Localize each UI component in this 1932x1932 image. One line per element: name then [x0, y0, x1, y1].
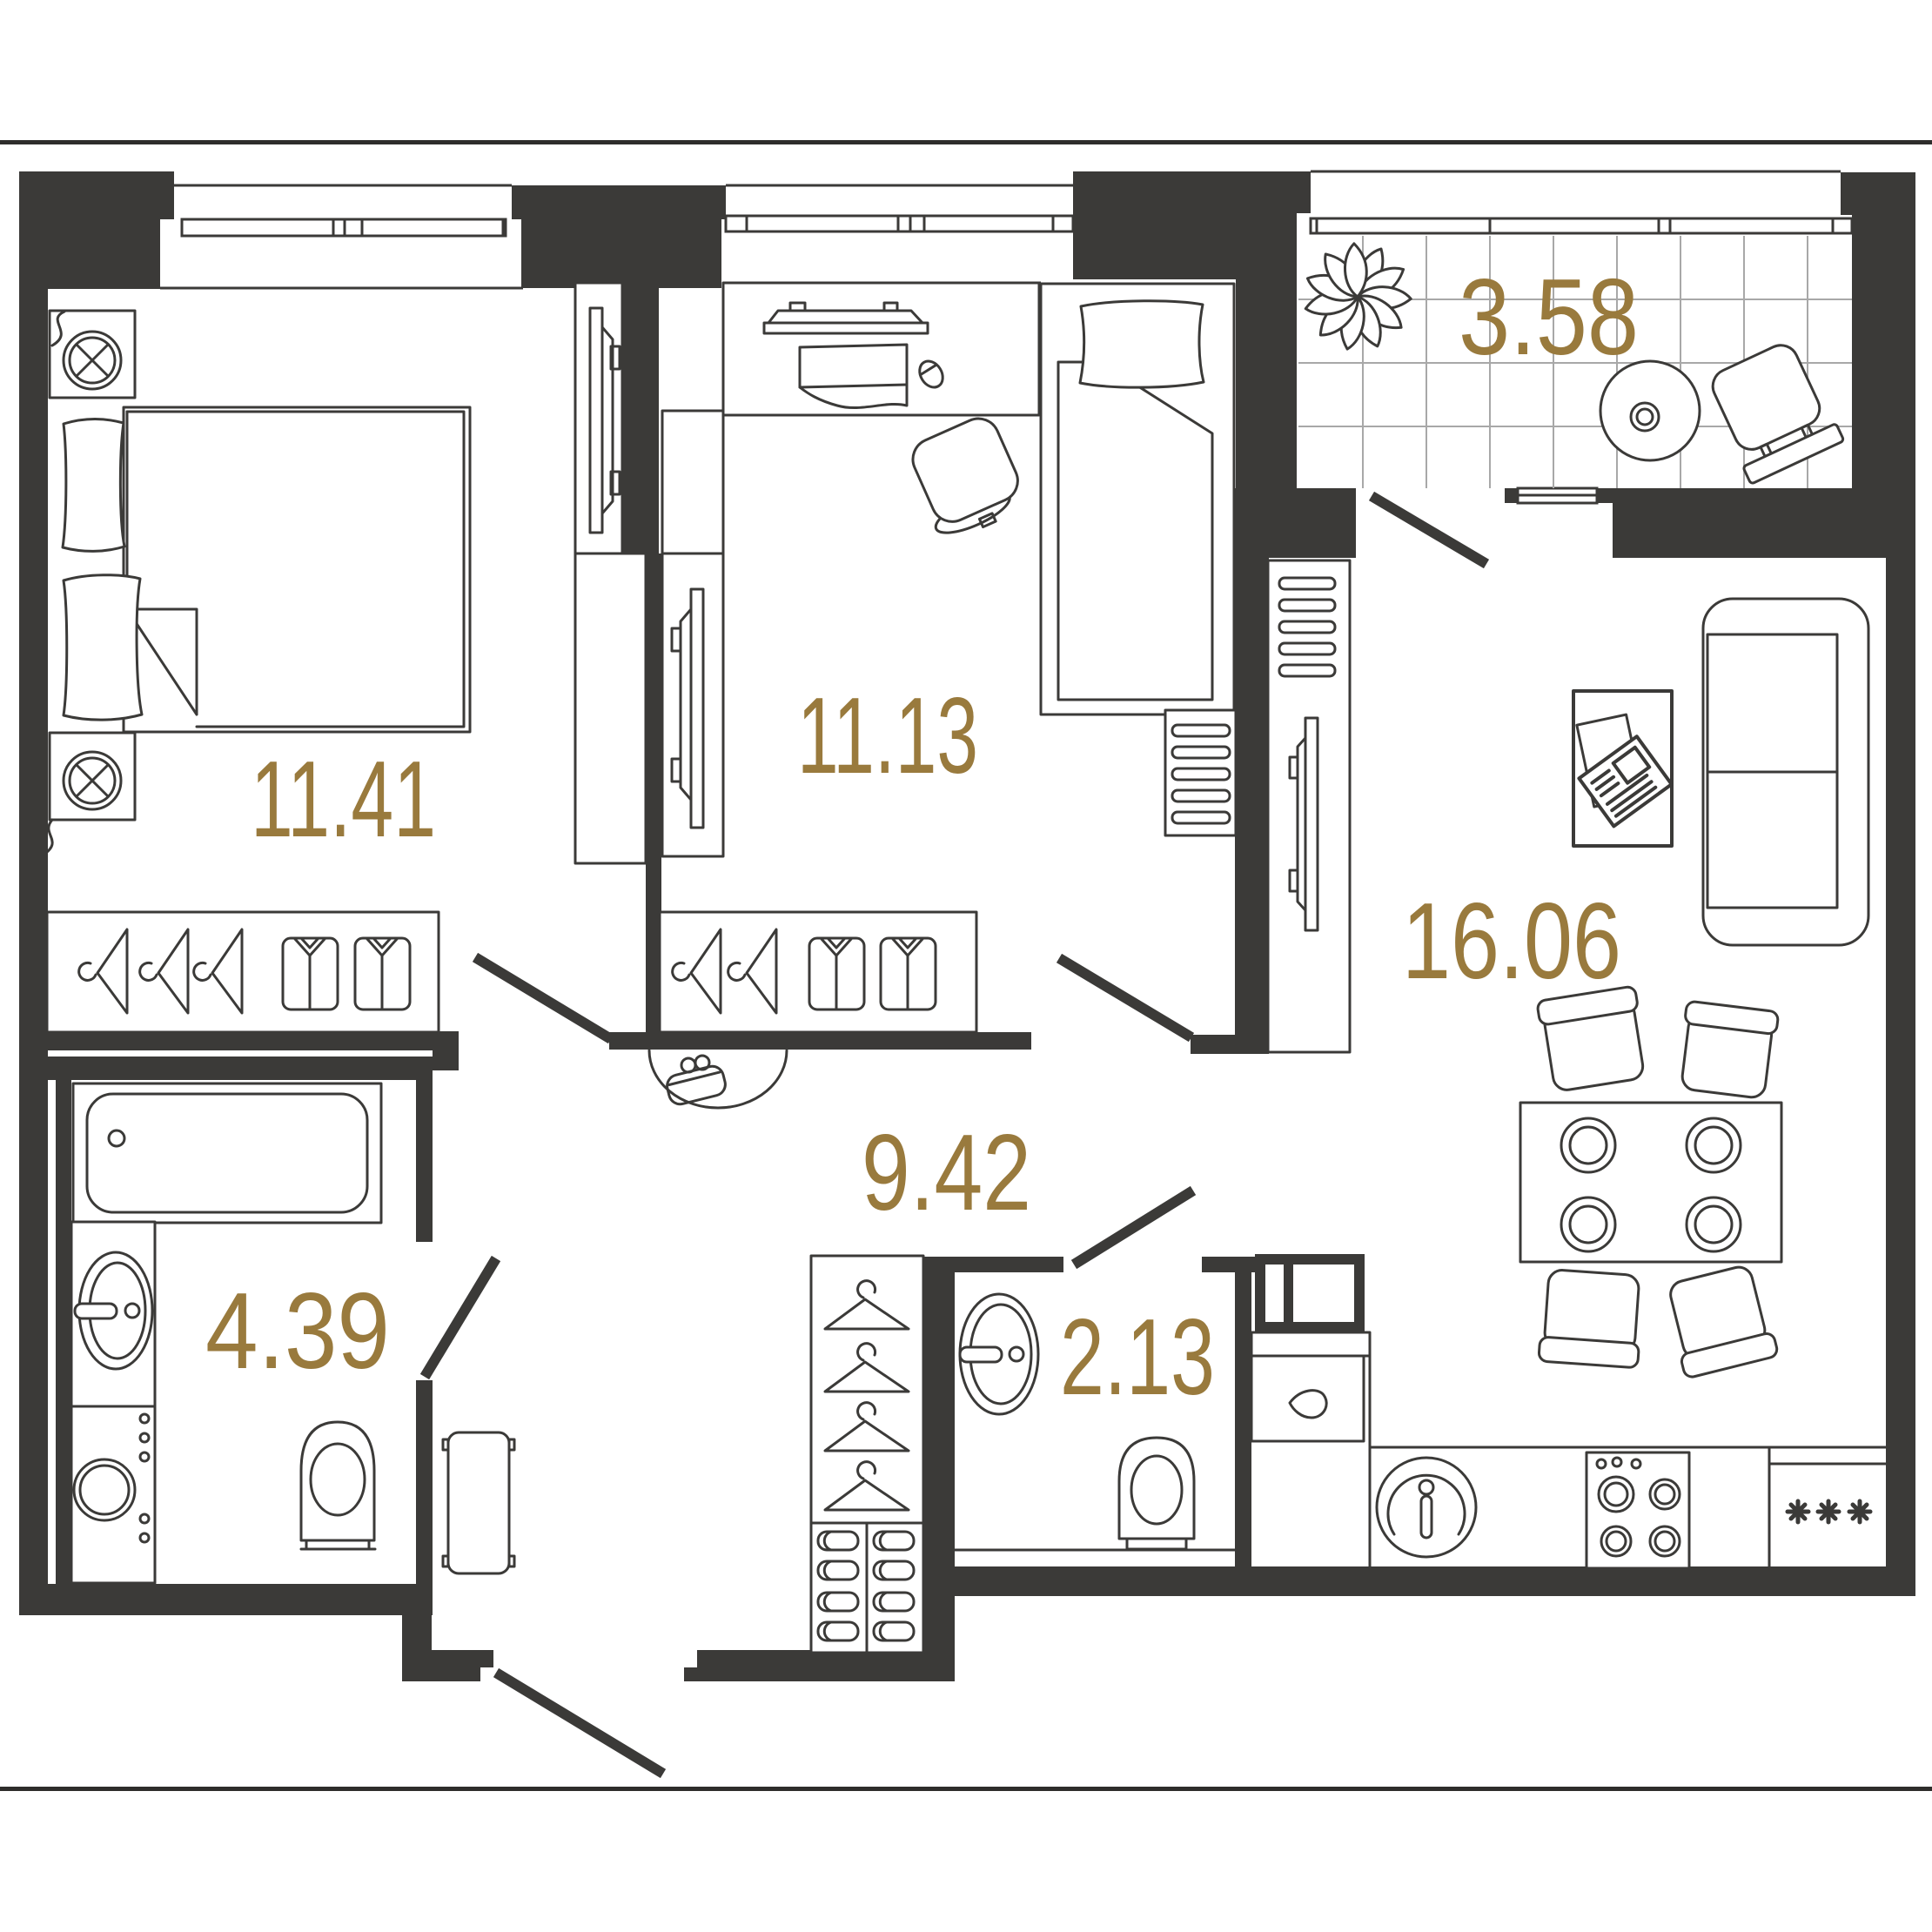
svg-text:11.13: 11.13: [797, 676, 978, 796]
svg-text:2.13: 2.13: [1060, 1298, 1215, 1418]
svg-text:4.39: 4.39: [205, 1271, 390, 1392]
svg-text:3.58: 3.58: [1459, 258, 1639, 378]
svg-text:16.06: 16.06: [1402, 882, 1621, 1002]
svg-text:9.42: 9.42: [862, 1113, 1031, 1233]
svg-text:11.41: 11.41: [251, 740, 436, 860]
